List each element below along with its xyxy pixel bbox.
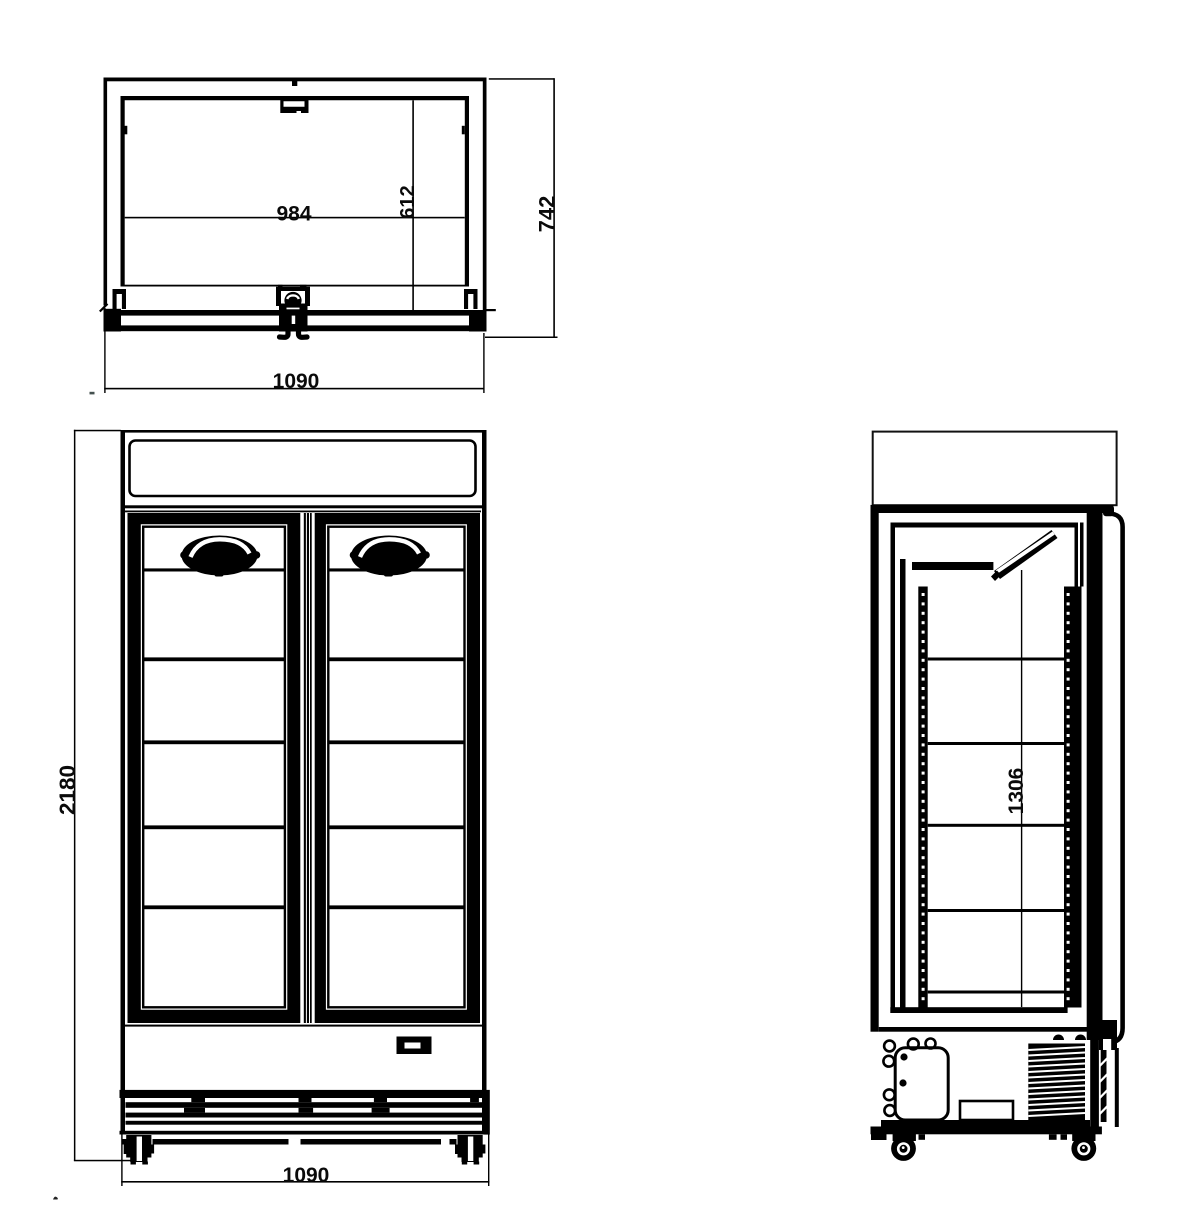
svg-text:1090: 1090	[283, 1164, 330, 1187]
svg-text:612: 612	[397, 185, 419, 218]
svg-text:984: 984	[276, 203, 311, 226]
svg-text:2180: 2180	[55, 765, 80, 815]
svg-text:1090: 1090	[273, 370, 320, 393]
svg-text:1306: 1306	[1005, 768, 1028, 815]
svg-text:742: 742	[535, 196, 560, 233]
